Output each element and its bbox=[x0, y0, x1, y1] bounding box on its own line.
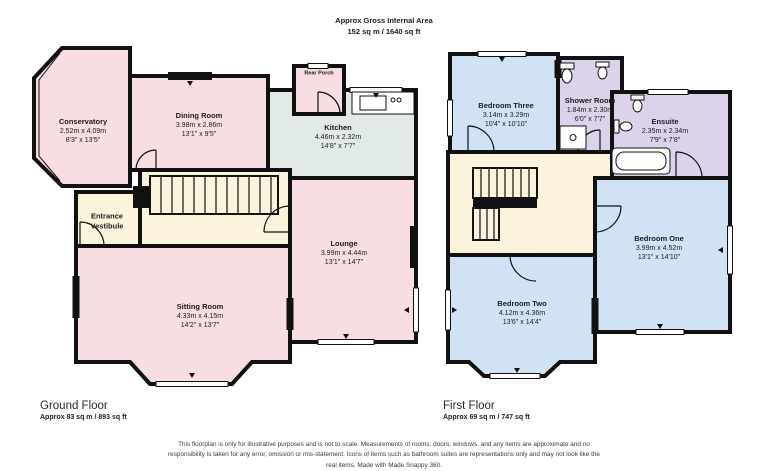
room-label-kitchen: Kitchen 4.46m x 2.32m 14'8" x 7'7" bbox=[315, 123, 361, 151]
stairs-ground bbox=[150, 176, 278, 214]
first-floor-caption: First Floor Approx 69 sq m / 747 sq ft bbox=[443, 400, 530, 421]
room-label-conservatory: Conservatory 2.52m x 4.09m 8'3" x 13'5" bbox=[59, 117, 107, 145]
bath-icon bbox=[612, 148, 670, 174]
header-line2: 152 sq m / 1640 sq ft bbox=[0, 27, 768, 38]
header-line1: Approx Gross Internal Area bbox=[0, 16, 768, 27]
kitchen-sink-icon bbox=[352, 92, 414, 114]
room-label-bedroom-one: Bedroom One 3.99m x 4.52m 13'1" x 14'10" bbox=[634, 234, 684, 262]
gross-internal-area-header: Approx Gross Internal Area 152 sq m / 16… bbox=[0, 16, 768, 38]
room-label-rear-porch: Rear Porch bbox=[304, 70, 333, 77]
shower-tray-icon bbox=[560, 126, 586, 149]
room-label-entrance-vestibule: Entrance Vestibule bbox=[84, 211, 130, 231]
disclaimer-text: This floorplan is only for illustrative … bbox=[168, 440, 600, 471]
first-floor-title: First Floor bbox=[443, 400, 530, 412]
room-label-shower-room: Shower Room 1.84m x 2.30m 6'0" x 7'7" bbox=[565, 96, 615, 124]
floorplan-page: { "header": { "line1": "Approx Gross Int… bbox=[0, 0, 768, 470]
room-label-lounge: Lounge 3.99m x 4.44m 13'1" x 14'7" bbox=[321, 239, 367, 267]
ground-floor-area: Approx 83 sq m / 893 sq ft bbox=[40, 414, 127, 421]
room-label-bedroom-three: Bedroom Three 3.14m x 3.29m 10'4" x 10'1… bbox=[478, 101, 533, 129]
room-label-bedroom-two: Bedroom Two 4.12m x 4.36m 13'6" x 14'4" bbox=[497, 299, 546, 327]
ground-floor-title: Ground Floor bbox=[40, 400, 127, 412]
first-floor-area: Approx 69 sq m / 747 sq ft bbox=[443, 414, 530, 421]
room-label-sitting-room: Sitting Room 4.33m x 4.15m 14'2" x 13'7" bbox=[177, 302, 224, 330]
ground-floor-caption: Ground Floor Approx 83 sq m / 893 sq ft bbox=[40, 400, 127, 421]
room-label-ensuite: Ensuite 2.35m x 2.34m 7'9" x 7'8" bbox=[642, 117, 688, 145]
room-label-dining-room: Dining Room 3.98m x 2.86m 13'1" x 9'5" bbox=[176, 111, 223, 139]
